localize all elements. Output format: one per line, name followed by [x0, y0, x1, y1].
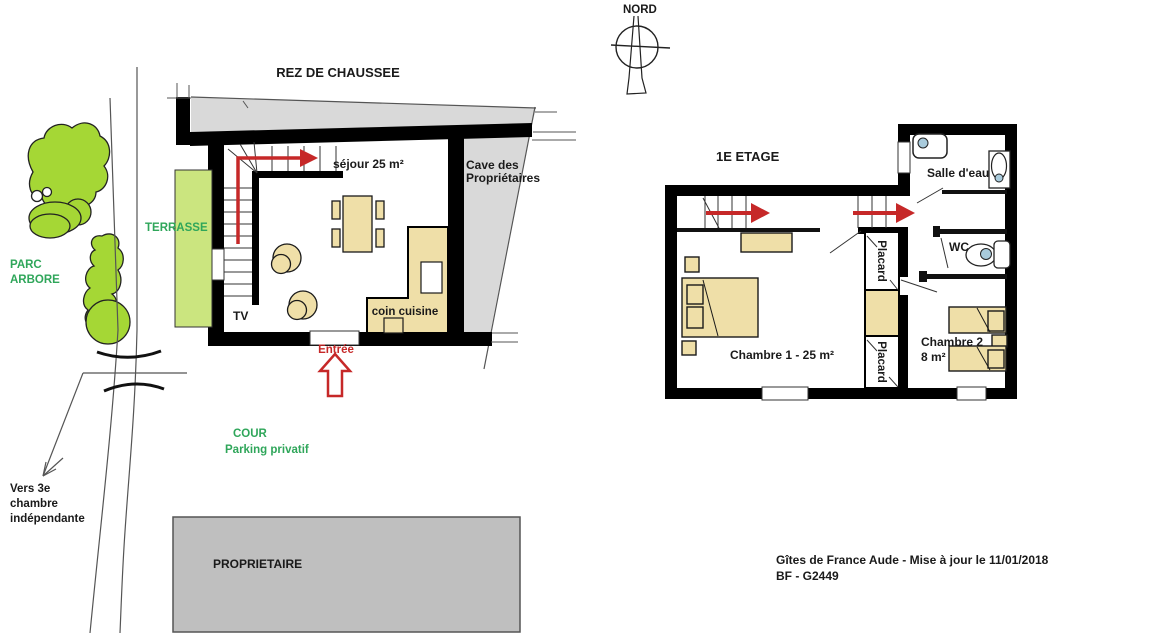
- cour-label: COUR: [233, 428, 268, 440]
- tree-highlight: [43, 188, 52, 197]
- direction-arrow-1: [706, 203, 770, 223]
- compass-label: NORD: [623, 4, 657, 16]
- bath-west-window: [898, 142, 910, 173]
- parking-label: Parking privatif: [225, 444, 309, 456]
- footer-credit-line2: BF - G2449: [776, 569, 839, 583]
- wc-south-cap: [919, 271, 927, 282]
- chair: [332, 229, 340, 247]
- chambre2-area-label: 8 m²: [921, 350, 946, 364]
- chair: [332, 201, 340, 219]
- path-line-right: [120, 67, 137, 633]
- armchair-1: [272, 244, 302, 274]
- entrance-arrow: [320, 354, 350, 396]
- placard-upper-label: Placard: [875, 240, 887, 282]
- vers-label-line3: indépendante: [10, 513, 85, 525]
- chambre1-label: Chambre 1 - 25 m²: [730, 348, 834, 362]
- proprietaire-building: [173, 517, 520, 632]
- direction-arrow-2: [853, 203, 915, 223]
- salle-eau-label: Salle d'eau: [927, 166, 989, 180]
- wc-north-wall: [938, 229, 1007, 234]
- floorplan-svg: REZ DE CHAUSSEE séjour 25 m² Cave des Pr…: [0, 0, 1152, 633]
- floorplan-page: REZ DE CHAUSSEE séjour 25 m² Cave des Pr…: [0, 0, 1152, 633]
- tree-group-north: [28, 123, 109, 238]
- armchair-2: [288, 291, 318, 320]
- tv-label: TV: [233, 309, 248, 323]
- washbasin: [989, 151, 1010, 188]
- gate-arc-lower: [104, 384, 164, 391]
- wc-south-wall: [926, 274, 1007, 279]
- wc-label: WC: [949, 240, 969, 254]
- north-wall: [665, 185, 910, 196]
- south-window-2: [957, 387, 986, 400]
- bedside-table: [992, 335, 1007, 347]
- proprietaire-label: PROPRIETAIRE: [213, 557, 302, 571]
- dining-table: [332, 196, 384, 252]
- dresser: [741, 233, 792, 252]
- vers-label-line2: chambre: [10, 498, 58, 510]
- vers-label-line1: Vers 3e: [10, 483, 50, 495]
- pillow: [687, 285, 703, 304]
- terrasse-label: TERRASSE: [145, 222, 208, 234]
- sejour-label: séjour 25 m²: [333, 157, 404, 171]
- corridor-wall: [677, 228, 820, 232]
- nightstand: [682, 341, 696, 355]
- ground-floor-title: REZ DE CHAUSSEE: [276, 65, 400, 80]
- compass: [611, 16, 670, 94]
- shower-drain: [918, 138, 928, 148]
- bath-north-wall: [898, 124, 1017, 135]
- first-floor-title: 1E ETAGE: [716, 149, 780, 164]
- staircase-rdc: [224, 142, 343, 305]
- chambre1-furniture: [682, 233, 792, 355]
- pillow: [988, 311, 1004, 331]
- chair: [376, 229, 384, 247]
- kitchen-label: coin cuisine: [372, 306, 438, 318]
- wc-north-cap: [933, 226, 940, 237]
- pillow: [687, 307, 703, 328]
- gate-arc-upper: [97, 351, 161, 357]
- parc-label-line2: ARBORE: [10, 274, 60, 286]
- nightstand: [685, 257, 699, 272]
- west-wall: [665, 185, 677, 399]
- tree-highlight: [32, 191, 43, 202]
- kitchen-sink: [421, 262, 442, 293]
- south-window-1: [762, 387, 808, 400]
- stair-direction-arrow-rdc: [238, 158, 302, 244]
- entrance-door-opening: [310, 331, 359, 345]
- cave-label-line2: Propriétaires: [466, 171, 540, 185]
- shower: [913, 134, 947, 158]
- pillow: [988, 350, 1004, 368]
- footer-credit-line1: Gîtes de France Aude - Mise à jour le 11…: [776, 553, 1049, 567]
- toilet: [966, 241, 1010, 268]
- terrasse-area: [175, 170, 212, 327]
- ground-floor-plan: [28, 67, 576, 633]
- salle-eau-wall: [942, 190, 1007, 194]
- placard-middle-block: [865, 290, 899, 336]
- chair: [376, 201, 384, 219]
- east-wall: [448, 126, 464, 346]
- placard-lower-label: Placard: [875, 341, 887, 383]
- kitchen-stove: [384, 318, 403, 333]
- entree-label: Entrée: [318, 344, 354, 356]
- tree-group-south: [84, 234, 130, 344]
- chambre2-label: Chambre 2: [921, 335, 983, 349]
- cave-label-line1: Cave des: [466, 158, 519, 172]
- wall-stub: [176, 97, 190, 145]
- parc-label-line1: PARC: [10, 259, 42, 271]
